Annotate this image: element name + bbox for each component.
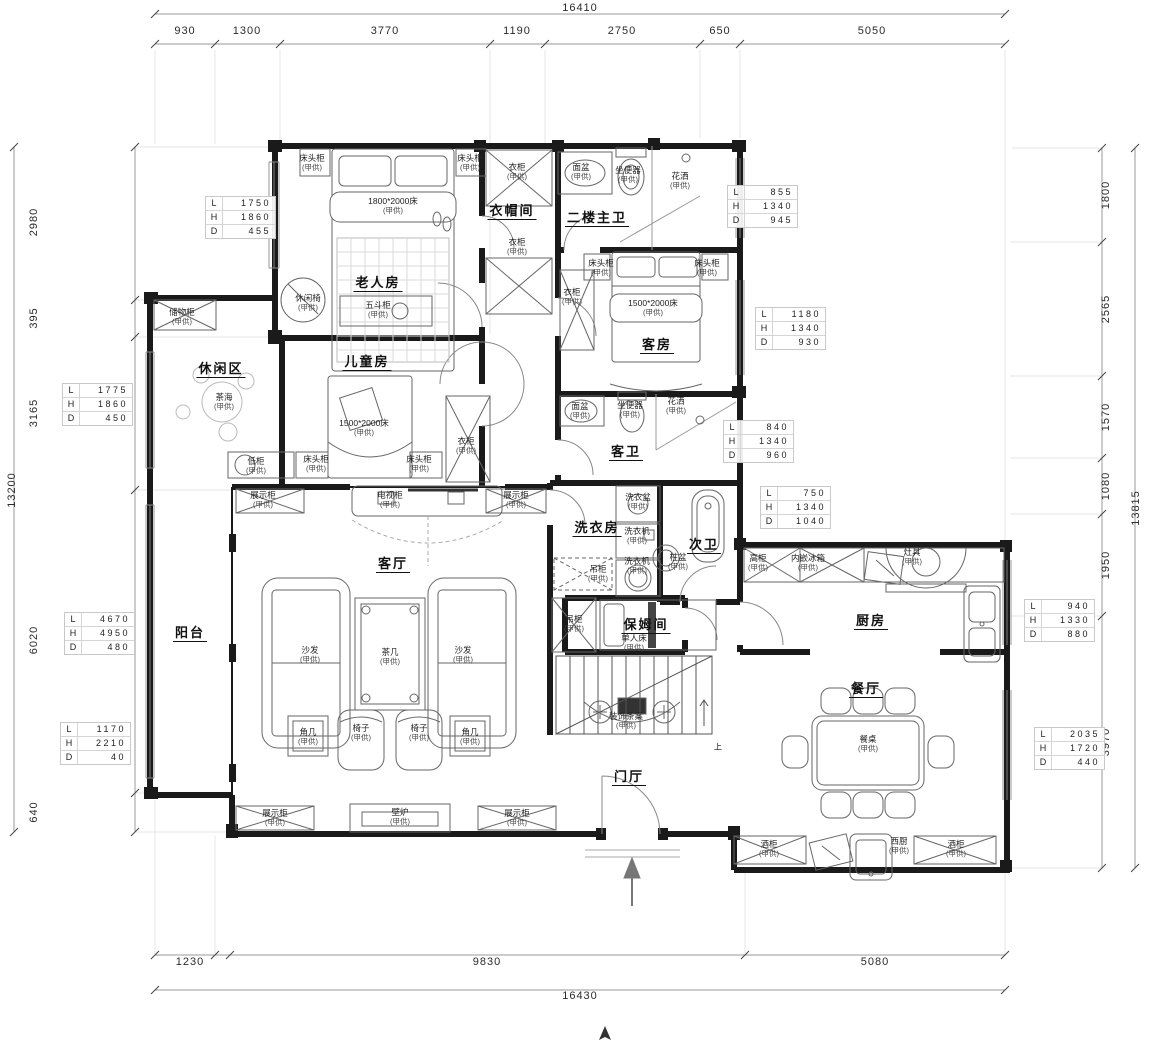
furniture-label-sofa: 沙发(甲供) bbox=[300, 646, 320, 664]
dim-left-seg: 6020 bbox=[28, 626, 40, 654]
room-title-laundry: 洗衣房 bbox=[572, 517, 621, 537]
furniture-label-bedside: 床头柜(甲供) bbox=[588, 259, 614, 277]
dim-bottom-seg: 5080 bbox=[861, 956, 889, 968]
furniture-label-bed1500: 1500*2000床(甲供) bbox=[628, 299, 678, 317]
room-title-living: 客厅 bbox=[376, 553, 410, 573]
room-title-dining: 餐厅 bbox=[849, 678, 883, 698]
furniture-label-wine-cab: 酒柜(甲供) bbox=[759, 840, 779, 858]
furniture-label-display-cab: 展示柜(甲供) bbox=[250, 491, 276, 509]
dim-right-seg: 1800 bbox=[1100, 181, 1112, 209]
furniture-label-chair: 椅子(甲供) bbox=[351, 724, 371, 742]
furniture-label-stove: 灶具(甲供) bbox=[902, 548, 922, 566]
dim-left-total: 13200 bbox=[6, 472, 18, 508]
dim-top-seg: 3770 bbox=[371, 25, 399, 37]
furniture-label-corner-table: 角几(甲供) bbox=[460, 728, 480, 746]
furniture-label-single-bed: 单人床(甲供) bbox=[621, 634, 647, 652]
dim-right-seg: 2565 bbox=[1100, 295, 1112, 323]
callout-kitchen: L940 H1330 D880 bbox=[1024, 599, 1095, 642]
furniture-label-wash-basin: 洗衣盆(甲供) bbox=[625, 493, 651, 511]
furniture-label-wine-cab: 酒柜(甲供) bbox=[946, 840, 966, 858]
furniture-label-low-cab: 低柜(甲供) bbox=[246, 457, 266, 475]
room-title-foyer: 门厅 bbox=[612, 766, 646, 786]
furniture-label-bedside: 床头柜(甲供) bbox=[406, 455, 432, 473]
room-title-kids: 儿童房 bbox=[342, 351, 391, 371]
furniture-label-hanging-cab: 吊柜(甲供) bbox=[564, 615, 584, 633]
furniture-label-display-cab: 展示柜(甲供) bbox=[503, 491, 529, 509]
furniture-label-wardrobe: 衣柜(甲供) bbox=[507, 163, 527, 181]
dim-top-seg: 2750 bbox=[608, 25, 636, 37]
furniture-label-bedside: 床头柜(甲供) bbox=[303, 455, 329, 473]
furniture bbox=[154, 146, 1004, 880]
callout-elder: L1750 H1860 D455 bbox=[205, 196, 276, 239]
furniture-label-sofa: 沙发(甲供) bbox=[453, 646, 473, 664]
entrance-arrow bbox=[624, 858, 640, 906]
furniture-label-washer: 洗衣机(甲供) bbox=[624, 557, 650, 575]
north-mark bbox=[599, 1026, 611, 1040]
callout-right-3: L840 H1340 D960 bbox=[723, 420, 794, 463]
furniture-label-storage-cab: 储物柜(甲供) bbox=[169, 308, 195, 326]
callout-right-4: L750 H1340 D1040 bbox=[760, 486, 831, 529]
room-title-kitchen: 厨房 bbox=[854, 610, 888, 630]
furniture-label-washer: 洗衣机(甲供) bbox=[624, 527, 650, 545]
room-title-second-bath: 次卫 bbox=[687, 534, 721, 554]
furniture-label-hanging-cab: 吊柜(甲供) bbox=[588, 565, 608, 583]
callout-right-1: L855 H1340 D945 bbox=[727, 185, 798, 228]
dim-bottom-seg: 1230 bbox=[176, 956, 204, 968]
furniture-label-shower: 花洒(甲供) bbox=[666, 397, 686, 415]
room-title-guest: 客房 bbox=[640, 334, 674, 354]
furniture-label-display-cab: 展示柜(甲供) bbox=[504, 809, 530, 827]
furniture-label-wardrobe: 衣柜(甲供) bbox=[562, 288, 582, 306]
room-title-cloak: 衣帽间 bbox=[487, 200, 536, 220]
dim-top-seg: 930 bbox=[174, 25, 195, 37]
furniture-label-basin: 面盆(甲供) bbox=[571, 163, 591, 181]
furniture-label-bedside: 床头柜(甲供) bbox=[299, 154, 325, 172]
furniture-label-west-kitchen: 西厨(甲供) bbox=[889, 837, 909, 855]
furniture-label-shower: 花洒(甲供) bbox=[670, 172, 690, 190]
furniture-label-console: 装饰条案(甲供) bbox=[609, 712, 643, 730]
dimension-lines bbox=[14, 14, 1135, 990]
furniture-label-bed1800: 1800*2000床(甲供) bbox=[368, 197, 418, 215]
dim-bottom-total: 16430 bbox=[562, 990, 598, 1002]
furniture-label-chair: 椅子(甲供) bbox=[409, 724, 429, 742]
dim-top-seg: 650 bbox=[709, 25, 730, 37]
dim-left-seg: 395 bbox=[28, 307, 40, 328]
furniture-label-coffee-table: 茶几(甲供) bbox=[380, 648, 400, 666]
callout-left-2: L4670 H4950 D480 bbox=[64, 612, 135, 655]
furniture-label-tea-table: 茶海(甲供) bbox=[214, 393, 234, 411]
room-title-master-bath: 二楼主卫 bbox=[565, 207, 629, 227]
stair-up-label: 上 bbox=[712, 742, 724, 753]
furniture-label-bedside: 床头柜(甲供) bbox=[457, 154, 483, 172]
room-title-guest-bath: 客卫 bbox=[609, 441, 643, 461]
dim-right-seg: 1950 bbox=[1100, 551, 1112, 579]
dim-bottom-seg: 9830 bbox=[473, 956, 501, 968]
furniture-label-tv-cab: 电视柜(甲供) bbox=[377, 491, 403, 509]
room-title-leisure: 休闲区 bbox=[196, 358, 245, 378]
furniture-label-wardrobe: 衣柜(甲供) bbox=[456, 437, 476, 455]
room-title-balcony: 阳台 bbox=[173, 622, 207, 642]
callout-dining: L2035 H1720 D440 bbox=[1034, 727, 1105, 770]
dim-top-seg: 1300 bbox=[233, 25, 261, 37]
furniture-label-basin: 面盆(甲供) bbox=[570, 402, 590, 420]
room-title-elder: 老人房 bbox=[353, 272, 402, 292]
dim-left-seg: 2980 bbox=[28, 208, 40, 236]
dim-left-seg: 3165 bbox=[28, 399, 40, 427]
furniture-label-dresser: 五斗柜(甲供) bbox=[365, 301, 391, 319]
callout-left-3: L1170 H2210 D40 bbox=[60, 722, 131, 765]
furniture-label-display-cab: 展示柜(甲供) bbox=[262, 809, 288, 827]
furniture-label-fridge: 内嵌冰箱(甲供) bbox=[791, 554, 825, 572]
furniture-label-bed1500: 1500*2000床(甲供) bbox=[339, 419, 389, 437]
furniture-label-lounge-chair: 休闲椅(甲供) bbox=[295, 294, 321, 312]
room-title-nanny: 保姆间 bbox=[621, 614, 670, 634]
furniture-label-toilet: 坐便器(甲供) bbox=[615, 166, 641, 184]
dimension-ticks bbox=[10, 10, 1139, 994]
dim-right-total: 13815 bbox=[1130, 490, 1142, 526]
furniture-label-pedestal-basin: 柱盆(甲供) bbox=[668, 553, 688, 571]
dim-right-seg: 1570 bbox=[1100, 403, 1112, 431]
dim-left-seg: 640 bbox=[28, 801, 40, 822]
dim-top-total: 16410 bbox=[562, 2, 598, 14]
furniture-label-tall-cab: 高柜(甲供) bbox=[748, 554, 768, 572]
furniture-label-dining-table: 餐桌(甲供) bbox=[858, 735, 878, 753]
callout-right-2: L1180 H1340 D930 bbox=[755, 307, 826, 350]
furniture-label-toilet: 坐便器(甲供) bbox=[617, 401, 643, 419]
dim-top-seg: 1190 bbox=[503, 25, 531, 37]
furniture-label-bedside: 床头柜(甲供) bbox=[694, 259, 720, 277]
callout-left-1: L1775 H1860 D450 bbox=[62, 383, 133, 426]
furniture-label-fireplace: 壁炉(甲供) bbox=[390, 808, 410, 826]
dim-right-seg: 1080 bbox=[1100, 472, 1112, 500]
floor-plan-canvas: 16410 930 1300 3770 1190 2750 650 5050 1… bbox=[0, 0, 1152, 1042]
dim-top-seg: 5050 bbox=[858, 25, 886, 37]
furniture-label-corner-table: 角几(甲供) bbox=[298, 728, 318, 746]
furniture-label-wardrobe: 衣柜(甲供) bbox=[507, 238, 527, 256]
